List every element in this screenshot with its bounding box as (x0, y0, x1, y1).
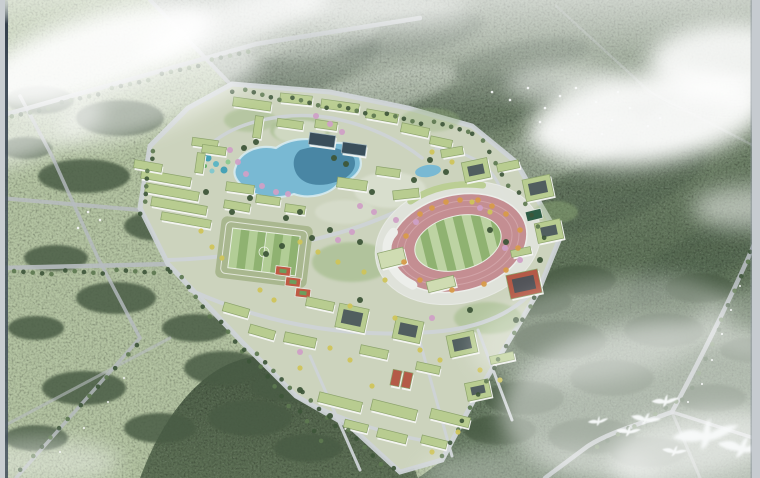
white-speck-bird (527, 87, 530, 90)
roadside-tree (21, 270, 26, 275)
roadside-tree (30, 270, 35, 275)
roadside-tree (457, 127, 462, 132)
roadside-tree (100, 271, 105, 276)
yellow-tree (477, 367, 482, 372)
roadside-tree (96, 384, 101, 389)
white-speck-bird (611, 119, 614, 122)
roadside-tree (207, 314, 212, 319)
garden-pool (221, 167, 228, 174)
white-speck-bird (99, 219, 102, 222)
roadside-tree (82, 270, 87, 275)
roadside-tree (393, 114, 398, 119)
roadside-tree (79, 403, 84, 408)
dark-tree (229, 209, 235, 215)
yellow-tree (429, 149, 434, 154)
pink-tree (259, 183, 265, 189)
dark-tree (537, 257, 543, 263)
roadside-tree (432, 120, 437, 125)
basketball-court (275, 266, 291, 277)
orange-tree (503, 267, 509, 273)
white-speck-bird (575, 87, 578, 90)
yellow-tree (369, 383, 374, 388)
roadside-tree (500, 172, 505, 177)
dark-tree (203, 189, 209, 195)
dark-tree (297, 209, 303, 215)
white-speck-bird (87, 211, 90, 214)
roadside-tree (476, 392, 481, 397)
pink-tree (313, 113, 319, 119)
pink-tree (357, 203, 363, 209)
yellow-tree (497, 377, 502, 382)
pink-tree (243, 171, 249, 177)
orange-tree (457, 197, 463, 203)
roadside-tree (517, 190, 522, 195)
orange-tree (449, 287, 455, 293)
roadside-tree (286, 404, 291, 409)
orange-tree (517, 227, 523, 233)
roadside-tree (481, 138, 486, 143)
plaza (315, 200, 375, 224)
roadside-tree (126, 352, 131, 357)
garden-pool (213, 161, 219, 167)
roadside-tree (739, 274, 744, 279)
roadside-tree (150, 156, 155, 161)
roadside-tree (363, 111, 368, 116)
roadside-tree (317, 407, 322, 412)
pink-tree (227, 147, 233, 153)
roadside-tree (529, 213, 534, 218)
roadside-tree (168, 270, 173, 275)
roadside-tree (536, 224, 541, 229)
roadside-tree (72, 269, 77, 274)
roadside-tree (468, 405, 473, 410)
yellow-tree (297, 365, 302, 370)
yellow-tree (382, 277, 387, 282)
yellow-tree (417, 347, 422, 352)
pink-tree (517, 257, 523, 263)
pink-tree (393, 217, 399, 223)
dark-tree (283, 215, 289, 221)
yellow-tree (209, 244, 214, 249)
white-speck-bird (647, 125, 650, 128)
garden-pool (210, 169, 215, 174)
roadside-tree (138, 212, 143, 217)
roadside-tree (312, 429, 317, 434)
roadside-tree (40, 271, 45, 276)
roadside-tree (419, 122, 424, 127)
roadside-tree (124, 268, 129, 273)
roadside-tree (255, 352, 260, 357)
white-speck-bird (601, 133, 604, 136)
dark-tree (263, 251, 269, 257)
yellow-tree (297, 239, 302, 244)
orange-tree (417, 211, 423, 217)
roadside-tree (91, 270, 96, 275)
roadside-tree (135, 343, 140, 348)
pink-tree (413, 219, 419, 225)
pink-tree (477, 205, 483, 211)
forest-clump (76, 282, 156, 314)
dark-tree (343, 161, 349, 167)
pink-tree (327, 121, 333, 127)
roadside-tree (410, 119, 415, 124)
roadside-tree (49, 272, 54, 277)
roadside-tree (487, 150, 492, 155)
roadside-tree (305, 419, 310, 424)
forest-clump (124, 413, 196, 443)
forest-clump (274, 434, 342, 462)
pink-tree (335, 237, 341, 243)
white-speck-bird (509, 99, 512, 102)
forest-clump (38, 159, 130, 193)
roadside-tree (484, 379, 489, 384)
roadside-tree (271, 369, 276, 374)
roadside-tree (333, 424, 338, 429)
yellow-tree (455, 429, 460, 434)
roadside-tree (493, 161, 498, 166)
roadside-tree (143, 192, 148, 197)
dark-tree (279, 243, 285, 249)
mist-cloud (506, 64, 626, 104)
white-speck-bird (544, 107, 547, 110)
roadside-tree (440, 122, 445, 127)
orange-tree (481, 281, 487, 287)
pink-tree (285, 191, 291, 197)
roadside-tree (372, 114, 377, 119)
yellow-tree (392, 315, 397, 320)
roadside-tree (151, 149, 156, 154)
roadside-tree (279, 377, 284, 382)
white-speck-bird (559, 95, 562, 98)
roadside-tree (449, 125, 454, 130)
left-page-margin (0, 0, 5, 478)
dark-tree (443, 169, 449, 175)
yellow-tree (257, 287, 262, 292)
roadside-tree (258, 364, 263, 369)
yellow-tree (361, 269, 366, 274)
roadside-tree (385, 112, 390, 117)
white-speck-bird (659, 117, 662, 120)
white-speck-bird (629, 107, 632, 110)
dark-tree (297, 387, 303, 393)
dark-tree (503, 239, 509, 245)
orange-tree (475, 197, 481, 203)
roadside-tree (470, 132, 475, 137)
roadside-tree (12, 269, 17, 274)
court-key (299, 291, 306, 296)
court-key (289, 280, 296, 285)
dark-tree (327, 227, 333, 233)
roadside-tree (233, 339, 238, 344)
orange-tree (489, 203, 495, 209)
white-speck-bird (539, 121, 542, 124)
roadside-tree (319, 439, 324, 444)
roadside-tree (200, 304, 205, 309)
roadside-tree (371, 453, 376, 458)
orange-tree (503, 211, 509, 217)
yellow-tree (347, 357, 352, 362)
roadside-tree (145, 176, 150, 181)
pink-tree (429, 315, 435, 321)
forest-clump (8, 316, 64, 340)
yellow-tree (271, 297, 276, 302)
roadside-tree (272, 384, 277, 389)
roadside-tree (308, 398, 313, 403)
roadside-tree (179, 275, 184, 280)
roadside-tree (143, 199, 148, 204)
roadside-tree (219, 320, 224, 325)
orange-tree (443, 199, 449, 205)
roadside-tree (298, 409, 303, 414)
orange-tree (401, 259, 407, 265)
right-image-seam (751, 0, 753, 478)
dark-tree (327, 413, 333, 419)
white-speck-bird (491, 91, 494, 94)
basketball-court (285, 277, 301, 288)
yellow-tree (315, 249, 320, 254)
roadside-tree (346, 428, 351, 433)
roadside-tree (542, 236, 547, 241)
roadside-tree (144, 184, 149, 189)
yellow-tree (469, 199, 474, 204)
roadside-tree (247, 359, 252, 364)
dark-tree (427, 157, 433, 163)
roadside-tree (226, 329, 231, 334)
road-marking (123, 377, 125, 379)
white-speck-bird (595, 101, 598, 104)
dark-tree (487, 227, 493, 233)
yellow-tree (487, 209, 492, 214)
road-marking (107, 401, 109, 403)
roadside-tree (523, 202, 528, 207)
yellow-tree (347, 303, 352, 308)
court-key (279, 269, 286, 274)
roadside-tree (114, 268, 119, 273)
pink-tree (502, 245, 508, 251)
orange-tree (515, 245, 521, 251)
dark-tree (241, 145, 247, 151)
roadside-tree (65, 417, 70, 422)
roadside-tree (63, 268, 68, 273)
roadside-tree (460, 419, 465, 424)
campus-aerial-rendering (0, 0, 760, 478)
left-image-seam (5, 0, 8, 478)
roadside-tree (145, 169, 150, 174)
roadside-tree (279, 394, 284, 399)
roadside-tree (186, 285, 191, 290)
roadside-tree (506, 184, 511, 189)
road-marking (739, 285, 741, 287)
roadside-tree (354, 436, 359, 441)
orange-tree (429, 205, 435, 211)
dark-tree (467, 307, 473, 313)
white-speck-bird (561, 129, 564, 132)
yellow-tree (327, 345, 332, 350)
white-speck-bird (77, 227, 80, 230)
white-speck-bird (577, 113, 580, 116)
forest-clump (184, 351, 264, 385)
roadside-tree (133, 269, 138, 274)
roadside-tree (362, 445, 367, 450)
roadside-tree (263, 360, 268, 365)
pink-tree (273, 189, 279, 195)
roadside-tree (87, 394, 92, 399)
rendering-canvas (0, 0, 760, 478)
roadside-tree (113, 366, 118, 371)
yellow-tree (335, 259, 340, 264)
dark-tree (253, 139, 259, 145)
garden-pool (226, 160, 231, 165)
roadside-tree (265, 374, 270, 379)
yellow-tree (437, 357, 442, 362)
white-speck-bird (617, 91, 620, 94)
roadside-tree (142, 270, 147, 275)
yellow-tree (449, 159, 454, 164)
yellow-tree (219, 255, 224, 260)
roadside-tree (392, 466, 397, 471)
roadside-tree (104, 375, 109, 380)
roadside-tree (242, 348, 247, 353)
pink-tree (371, 209, 377, 215)
dark-tree (411, 177, 417, 183)
roadside-tree (466, 130, 471, 135)
dark-tree (331, 155, 337, 161)
pink-tree (235, 159, 241, 165)
roadside-tree (379, 462, 384, 467)
roadside-tree (152, 271, 157, 276)
roadside-tree (288, 386, 293, 391)
roadside-tree (746, 260, 751, 265)
dark-tree (309, 235, 315, 241)
dark-tree (247, 195, 253, 201)
roadside-tree (448, 440, 453, 445)
dark-tree (357, 297, 363, 303)
dark-tree (357, 239, 363, 245)
pink-tree (349, 229, 355, 235)
forest-clump (208, 400, 292, 436)
pink-tree (339, 129, 345, 135)
roadside-tree (193, 295, 198, 300)
dark-tree (369, 189, 375, 195)
orange-tree (417, 277, 423, 283)
pink-tree (297, 349, 303, 355)
right-page-margin (752, 0, 760, 478)
yellow-tree (429, 449, 434, 454)
roadside-tree (57, 426, 62, 431)
road-marking (83, 427, 85, 429)
orange-tree (403, 233, 409, 239)
roadside-tree (402, 117, 407, 122)
yellow-tree (198, 228, 203, 233)
